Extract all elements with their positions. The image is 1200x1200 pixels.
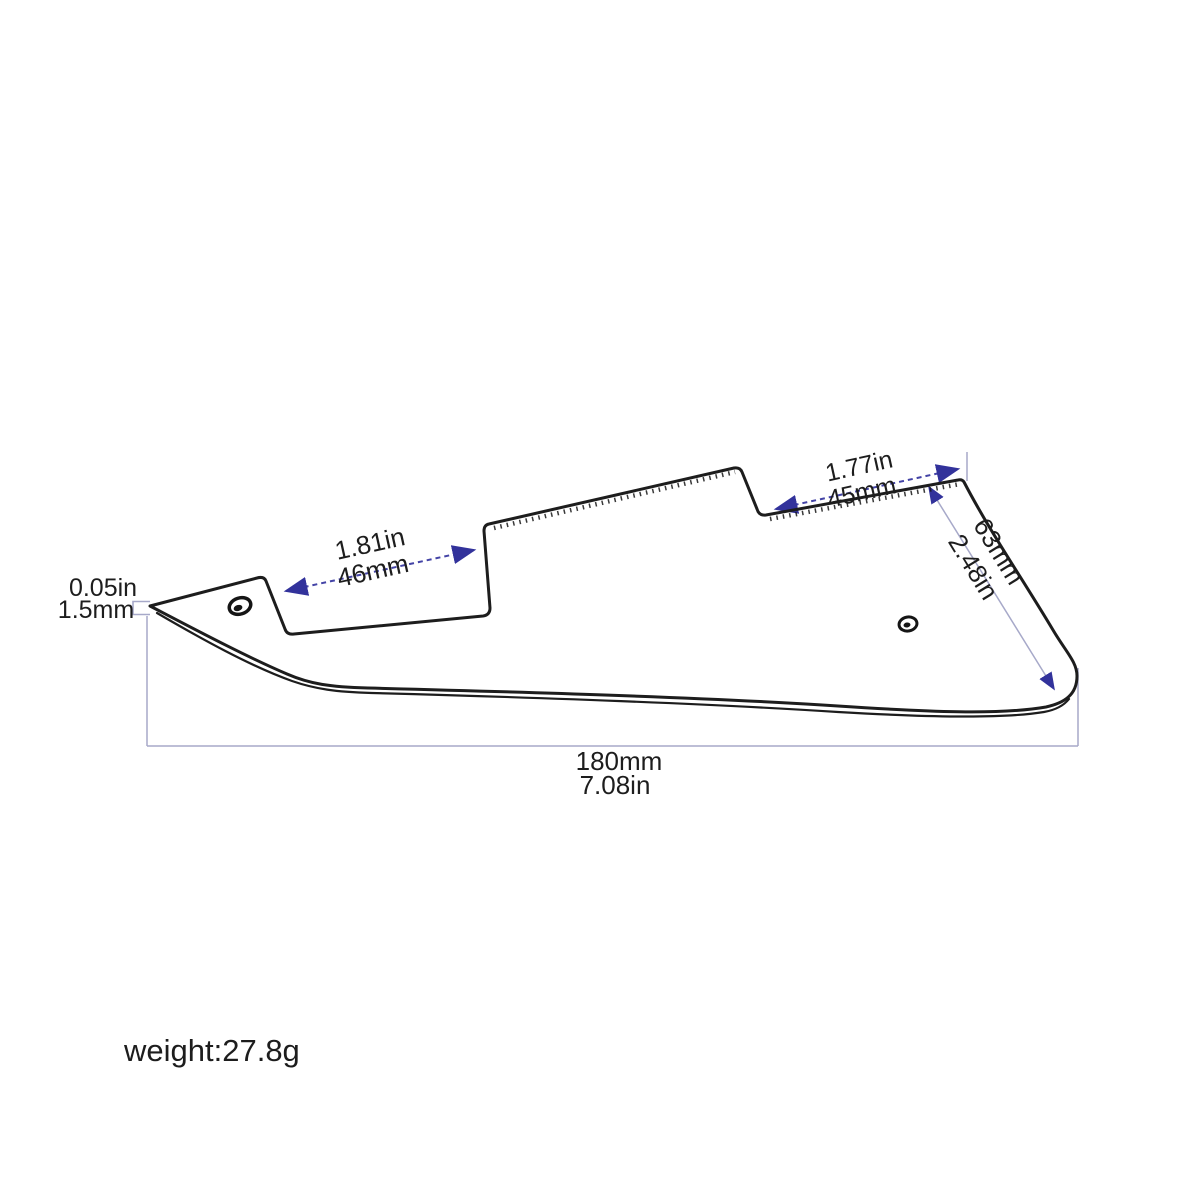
serrated-edge-overlay-middle bbox=[494, 472, 735, 528]
thickness-bracket bbox=[133, 602, 150, 615]
screw-hole-right bbox=[898, 616, 918, 633]
weight-label: weight:27.8g bbox=[123, 1033, 300, 1068]
diagram-canvas: 0.05in 1.5mm 1.81in 46mm 1.77in 45mm 63m… bbox=[0, 0, 1200, 1200]
screw-hole-left bbox=[227, 595, 253, 617]
pickguard-dimension-diagram: 0.05in 1.5mm 1.81in 46mm 1.77in 45mm 63m… bbox=[0, 0, 1200, 1200]
right-edge-labels: 63mm 2.48in bbox=[942, 513, 1031, 606]
length-label-in: 7.08in bbox=[580, 770, 651, 800]
screw-hole-left-inner bbox=[233, 604, 243, 612]
neck-width-labels: 1.81in 46mm bbox=[328, 521, 413, 593]
pickguard-bevel-edge bbox=[157, 613, 1069, 717]
thickness-label-mm: 1.5mm bbox=[58, 596, 134, 624]
bridge-width-labels: 1.77in 45mm bbox=[819, 445, 901, 513]
screw-hole-right-inner bbox=[903, 622, 911, 628]
